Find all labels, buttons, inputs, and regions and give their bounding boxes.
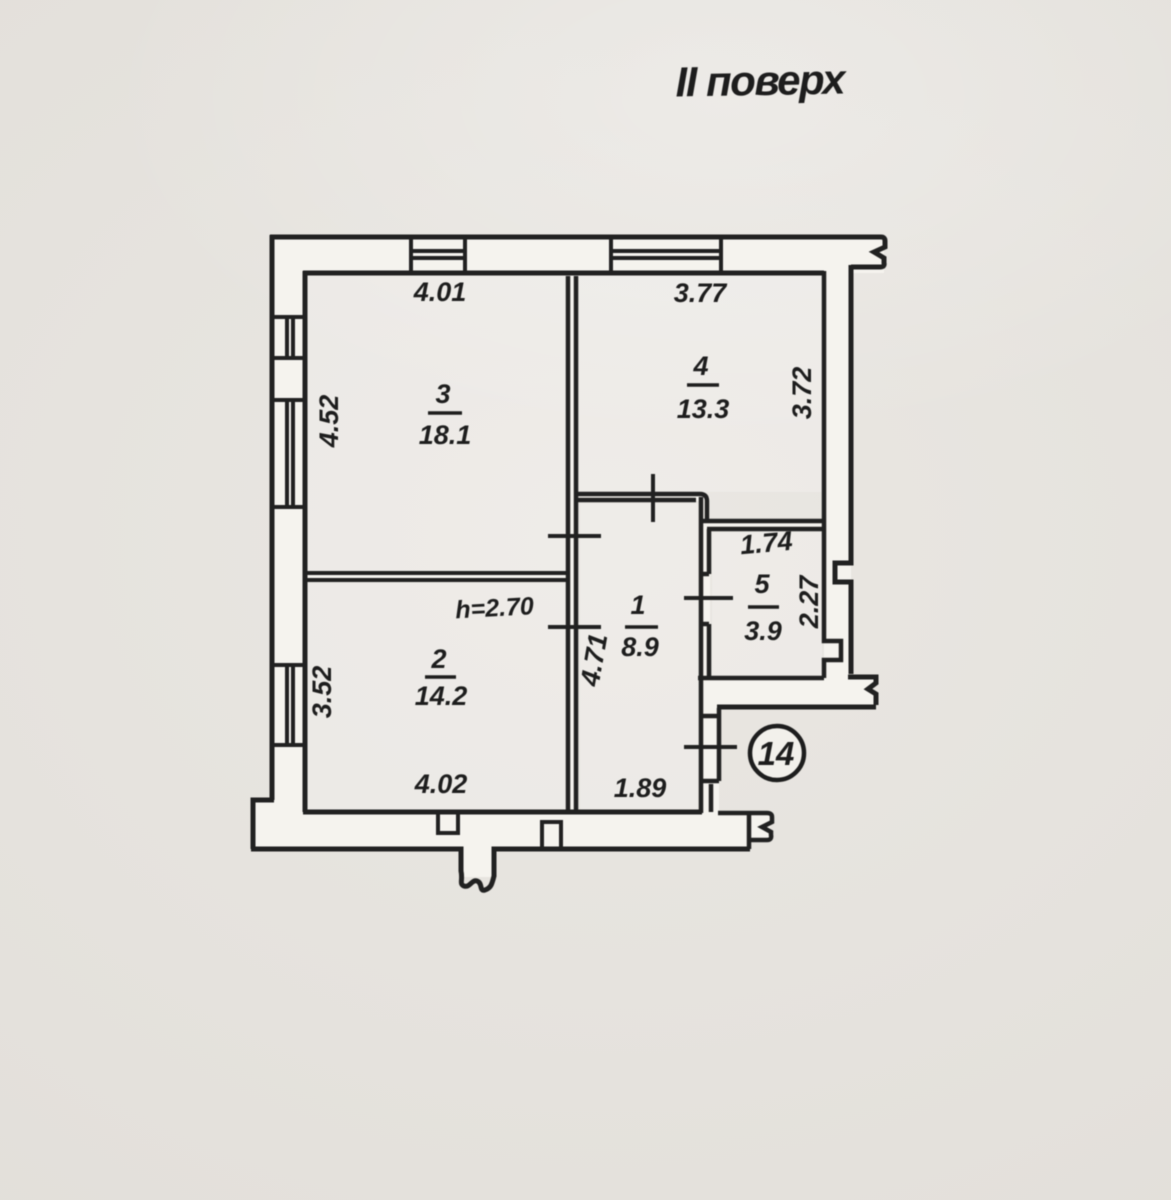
svg-text:1.74: 1.74 [739,526,794,560]
svg-text:4.52: 4.52 [314,395,344,449]
svg-text:5: 5 [754,569,770,599]
svg-text:2: 2 [430,644,446,674]
svg-text:II поверх: II поверх [675,55,847,105]
svg-text:2.27: 2.27 [794,574,824,630]
svg-text:3.52: 3.52 [307,666,337,719]
svg-text:18.1: 18.1 [419,420,472,450]
svg-text:4: 4 [692,351,708,381]
svg-text:8.9: 8.9 [621,632,659,662]
svg-text:14: 14 [758,735,795,772]
svg-text:1: 1 [630,590,645,620]
svg-text:1.89: 1.89 [614,773,667,803]
svg-text:3.9: 3.9 [744,616,782,646]
svg-text:4.02: 4.02 [414,769,468,799]
svg-text:h=2.70: h=2.70 [455,592,535,624]
svg-text:14.2: 14.2 [415,681,468,711]
svg-text:3.72: 3.72 [787,367,817,420]
svg-text:3.77: 3.77 [674,278,729,308]
svg-text:13.3: 13.3 [677,394,730,424]
svg-text:3: 3 [435,379,450,409]
svg-text:4.01: 4.01 [413,277,467,307]
